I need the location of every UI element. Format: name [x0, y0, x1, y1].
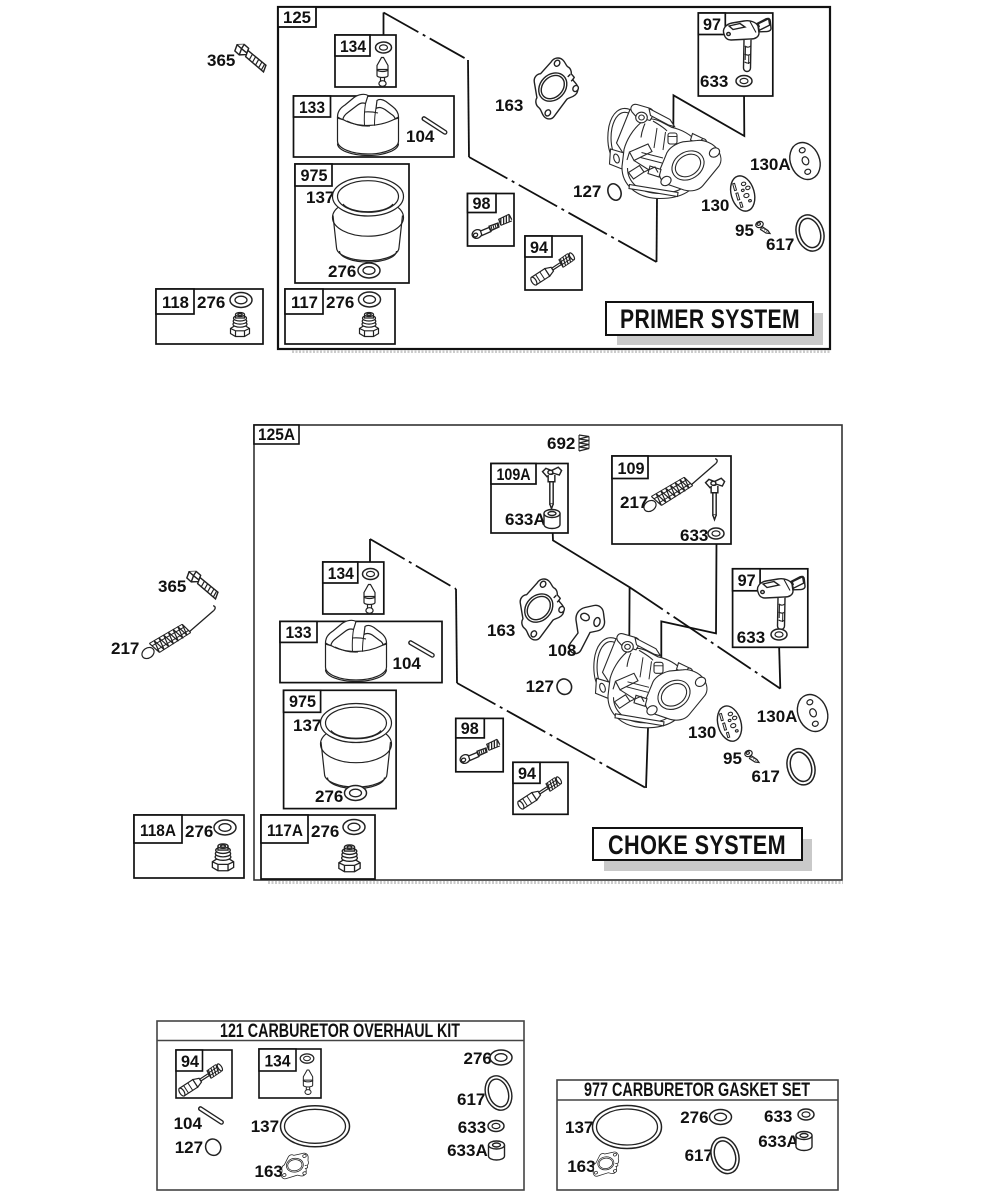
svg-text:617: 617 — [766, 235, 794, 254]
svg-text:617: 617 — [752, 767, 780, 786]
svg-text:617: 617 — [685, 1146, 713, 1165]
svg-text:98: 98 — [461, 719, 479, 738]
svg-text:276: 276 — [328, 262, 356, 281]
svg-text:633A: 633A — [505, 510, 546, 529]
svg-text:118A: 118A — [140, 821, 176, 840]
svg-text:127: 127 — [175, 1138, 203, 1157]
svg-text:137: 137 — [306, 188, 334, 207]
svg-text:CHOKE SYSTEM: CHOKE SYSTEM — [608, 830, 786, 860]
svg-text:692: 692 — [547, 434, 575, 453]
svg-text:94: 94 — [530, 238, 549, 257]
svg-text:633A: 633A — [447, 1141, 488, 1160]
svg-text:118: 118 — [162, 293, 189, 312]
svg-text:977 CARBURETOR GASKET SET: 977 CARBURETOR GASKET SET — [584, 1080, 810, 1101]
svg-text:276: 276 — [464, 1049, 492, 1068]
svg-text:276: 276 — [680, 1108, 708, 1127]
svg-text:633: 633 — [764, 1107, 792, 1126]
svg-text:95: 95 — [723, 749, 742, 768]
svg-text:633: 633 — [680, 526, 708, 545]
svg-text:130: 130 — [688, 723, 716, 742]
svg-text:137: 137 — [293, 716, 321, 735]
svg-text:276: 276 — [315, 787, 343, 806]
svg-text:617: 617 — [457, 1090, 485, 1109]
svg-text:163: 163 — [487, 621, 515, 640]
svg-text:PRIMER SYSTEM: PRIMER SYSTEM — [620, 304, 800, 334]
svg-text:95: 95 — [735, 221, 754, 240]
svg-text:108: 108 — [548, 641, 576, 660]
svg-text:127: 127 — [573, 182, 601, 201]
svg-text:975: 975 — [301, 166, 328, 185]
svg-text:130: 130 — [701, 196, 729, 215]
svg-text:109: 109 — [618, 459, 645, 478]
svg-text:98: 98 — [473, 194, 491, 213]
svg-text:133: 133 — [286, 623, 312, 642]
svg-text:97: 97 — [738, 571, 756, 590]
svg-text:104: 104 — [393, 654, 422, 673]
svg-text:276: 276 — [185, 822, 213, 841]
svg-text:130A: 130A — [757, 707, 798, 726]
svg-text:365: 365 — [207, 51, 235, 70]
svg-text:137: 137 — [251, 1117, 279, 1136]
svg-text:633A: 633A — [758, 1132, 799, 1151]
svg-text:134: 134 — [265, 1052, 291, 1071]
svg-text:975: 975 — [289, 692, 316, 711]
svg-text:125A: 125A — [258, 425, 295, 444]
svg-text:276: 276 — [326, 293, 354, 312]
svg-text:121 CARBURETOR OVERHAUL KIT: 121 CARBURETOR OVERHAUL KIT — [220, 1021, 460, 1042]
svg-text:633: 633 — [458, 1118, 486, 1137]
svg-text:163: 163 — [495, 96, 523, 115]
svg-text:117: 117 — [291, 293, 318, 312]
svg-text:163: 163 — [255, 1162, 283, 1181]
svg-text:276: 276 — [311, 822, 339, 841]
svg-text:97: 97 — [703, 15, 721, 34]
svg-text:104: 104 — [406, 127, 435, 146]
svg-text:133: 133 — [299, 98, 325, 117]
svg-text:94: 94 — [181, 1052, 200, 1071]
svg-text:109A: 109A — [497, 465, 531, 484]
svg-text:633: 633 — [700, 72, 728, 91]
svg-text:130A: 130A — [750, 155, 791, 174]
svg-text:633: 633 — [737, 628, 765, 647]
svg-text:276: 276 — [197, 293, 225, 312]
svg-text:94: 94 — [518, 764, 537, 783]
svg-text:104: 104 — [174, 1114, 203, 1133]
svg-text:134: 134 — [328, 564, 354, 583]
svg-text:365: 365 — [158, 577, 186, 596]
svg-text:137: 137 — [565, 1118, 593, 1137]
svg-text:125: 125 — [283, 8, 311, 27]
svg-text:134: 134 — [340, 37, 366, 56]
svg-text:163: 163 — [567, 1157, 595, 1176]
svg-text:217: 217 — [111, 639, 139, 658]
svg-text:117A: 117A — [267, 821, 303, 840]
svg-text:127: 127 — [526, 677, 554, 696]
